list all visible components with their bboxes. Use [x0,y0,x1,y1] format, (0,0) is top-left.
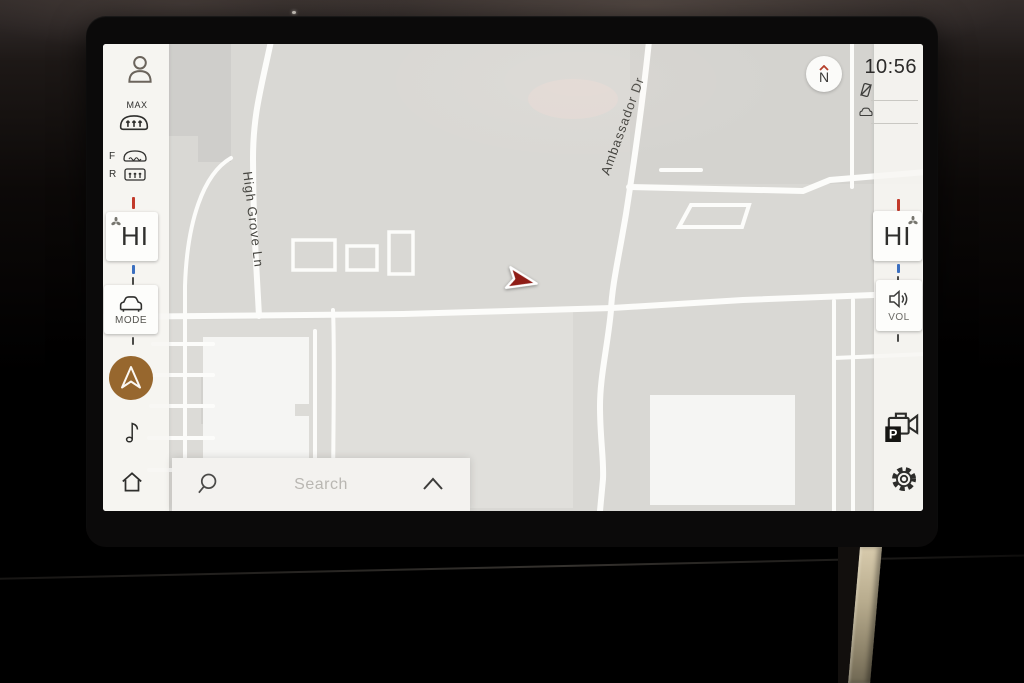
front-defrost-icon [122,148,148,165]
screen-glare [528,79,618,119]
car-mode-icon [117,294,145,313]
settings-button[interactable] [889,464,919,494]
search-collapse-button[interactable] [420,475,446,498]
navigation-button-circle [109,356,153,400]
max-defrost-button[interactable]: MAX [117,100,157,133]
parking-badge-label: P [889,426,898,441]
vehicle-status-icon [858,104,874,119]
clock: 10:56 [855,56,917,79]
chevron-up-icon [420,475,446,493]
max-defrost-label: MAX [117,100,157,110]
volume-lower-tick [897,334,899,342]
status-divider [871,100,918,101]
compass-north-label: N [819,71,829,83]
map-building-white [650,395,795,505]
map-canvas[interactable]: High Grove Ln Ambassador Dr [103,44,923,511]
media-button[interactable] [119,419,143,445]
max-defrost-icon [117,111,151,133]
fan-icon [111,217,121,227]
driver-temp-value: HI [121,221,149,252]
volume-button[interactable]: VOL [876,280,922,331]
music-note-icon [119,419,143,445]
rear-defrost-label: R [109,169,116,180]
fan-icon [908,216,918,226]
person-icon [123,52,157,86]
vehicle-status-item [858,104,874,124]
mode-lower-tick [132,337,134,345]
front-defrost-button[interactable]: F [109,148,148,165]
passenger-temp-cold-tick [897,264,900,273]
phone-disconnected-icon [858,82,874,98]
infotainment-display: High Grove Ln Ambassador Dr MAX [103,44,923,511]
climate-mode-button[interactable]: MODE [104,285,158,334]
mode-upper-tick [132,277,134,285]
search-input[interactable]: Search [172,458,470,511]
driver-temp-hot-tick [132,197,135,209]
mode-label: MODE [115,315,147,326]
home-icon [119,470,145,494]
front-defrost-label: F [109,151,115,162]
navigation-app-button[interactable] [109,356,153,400]
status-divider [871,123,918,124]
search-icon [194,471,220,502]
compass-button[interactable]: N [806,56,842,92]
profile-button[interactable] [123,52,157,86]
parking-camera-icon: P [884,408,922,442]
infotainment-screen-bezel: High Grove Ln Ambassador Dr MAX [86,16,938,547]
driver-temp-button[interactable]: HI [106,212,158,261]
rear-defrost-icon [122,166,148,183]
volume-label: VOL [888,312,910,323]
passenger-temp-button[interactable]: HI [873,211,922,261]
passenger-temp-hot-tick [897,199,900,211]
dashboard-highlight-speck [292,11,296,14]
settings-gear-icon [889,464,919,494]
rear-defrost-button[interactable]: R [109,166,148,183]
map-building-white [203,337,309,458]
driver-temp-cold-tick [132,265,135,274]
dashboard-photo: High Grove Ln Ambassador Dr MAX [0,0,1024,683]
home-button[interactable] [119,470,145,494]
speaker-icon [887,288,911,310]
parking-camera-button[interactable]: P [884,408,922,442]
